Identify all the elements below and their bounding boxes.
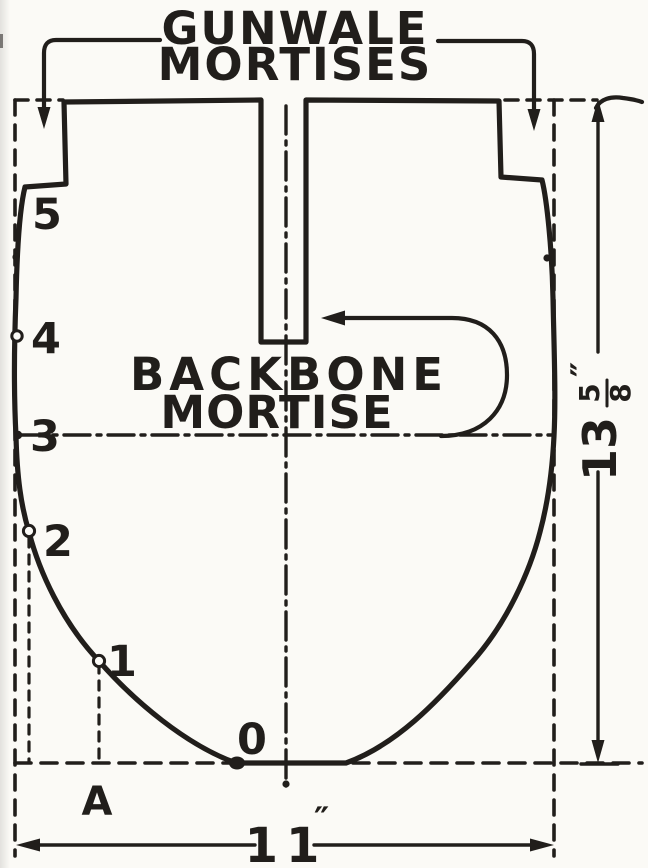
diagram-page: 13 5 8 ″ 11 ″ GU	[0, 0, 648, 868]
labels: GUNWALE MORTISES BACKBONE MORTISE 5 4 3 …	[30, 2, 448, 825]
station1-circle	[93, 655, 104, 666]
paper-edge-shading	[0, 0, 10, 868]
width-dim-unit: ″	[314, 800, 329, 840]
station1-label: 1	[107, 637, 137, 687]
station2-circle	[23, 525, 34, 536]
station4-label: 4	[31, 314, 61, 364]
height-dim-arrow-down	[592, 740, 605, 763]
height-dim-numerator: 5	[573, 383, 606, 402]
height-dim-denominator: 8	[604, 383, 637, 402]
gunwale-arrow-right	[528, 109, 541, 131]
baseline-a-label: A	[82, 779, 113, 825]
paper-speck	[0, 34, 3, 48]
station3-label: 3	[30, 412, 60, 462]
station-markers	[12, 253, 551, 769]
height-dim-text: 13 5 8 ″	[564, 362, 637, 481]
backbone-label-line2: MORTISE	[160, 386, 393, 439]
height-dim-whole: 13	[573, 417, 627, 481]
station2-label: 2	[43, 517, 73, 567]
station-dot-upper-left	[12, 253, 19, 260]
top-right-hook	[596, 97, 642, 108]
width-dim-arrow-left	[16, 839, 40, 852]
station-dot-upper-right	[543, 254, 550, 261]
boat-mold-diagram: 13 5 8 ″ 11 ″ GU	[0, 0, 648, 868]
height-dim-unit: ″	[564, 362, 604, 377]
width-dim-arrow-right	[530, 839, 554, 852]
station4-circle	[12, 331, 22, 341]
height-dimension: 13 5 8 ″	[564, 99, 637, 764]
centerline-end-dot	[282, 780, 289, 787]
gunwale-label-line2: MORTISES	[158, 38, 433, 91]
backbone-arrow	[321, 311, 345, 326]
gunwale-arrow-left	[38, 107, 51, 129]
station5-label: 5	[32, 190, 62, 240]
station3-dot	[14, 431, 22, 439]
station0-label: 0	[237, 715, 267, 765]
